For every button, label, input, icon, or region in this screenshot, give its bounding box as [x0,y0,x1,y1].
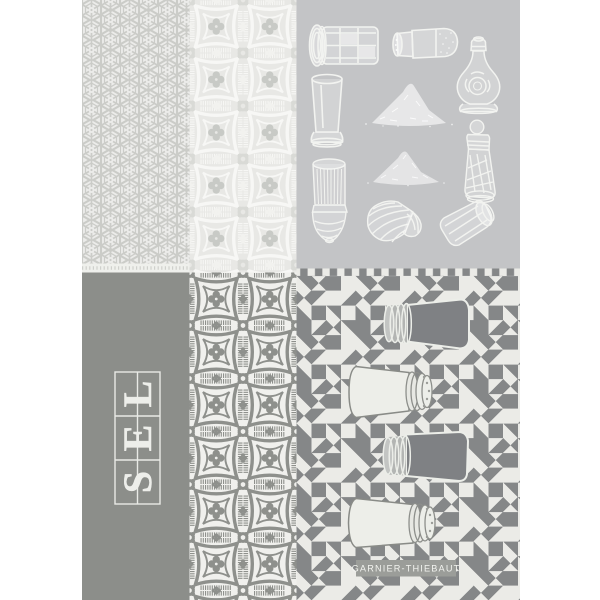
svg-text:E: E [115,425,160,452]
svg-text:S: S [115,471,160,493]
svg-text:GARNIER-THIEBAUT: GARNIER-THIEBAUT [352,564,461,574]
svg-text:L: L [115,381,160,408]
